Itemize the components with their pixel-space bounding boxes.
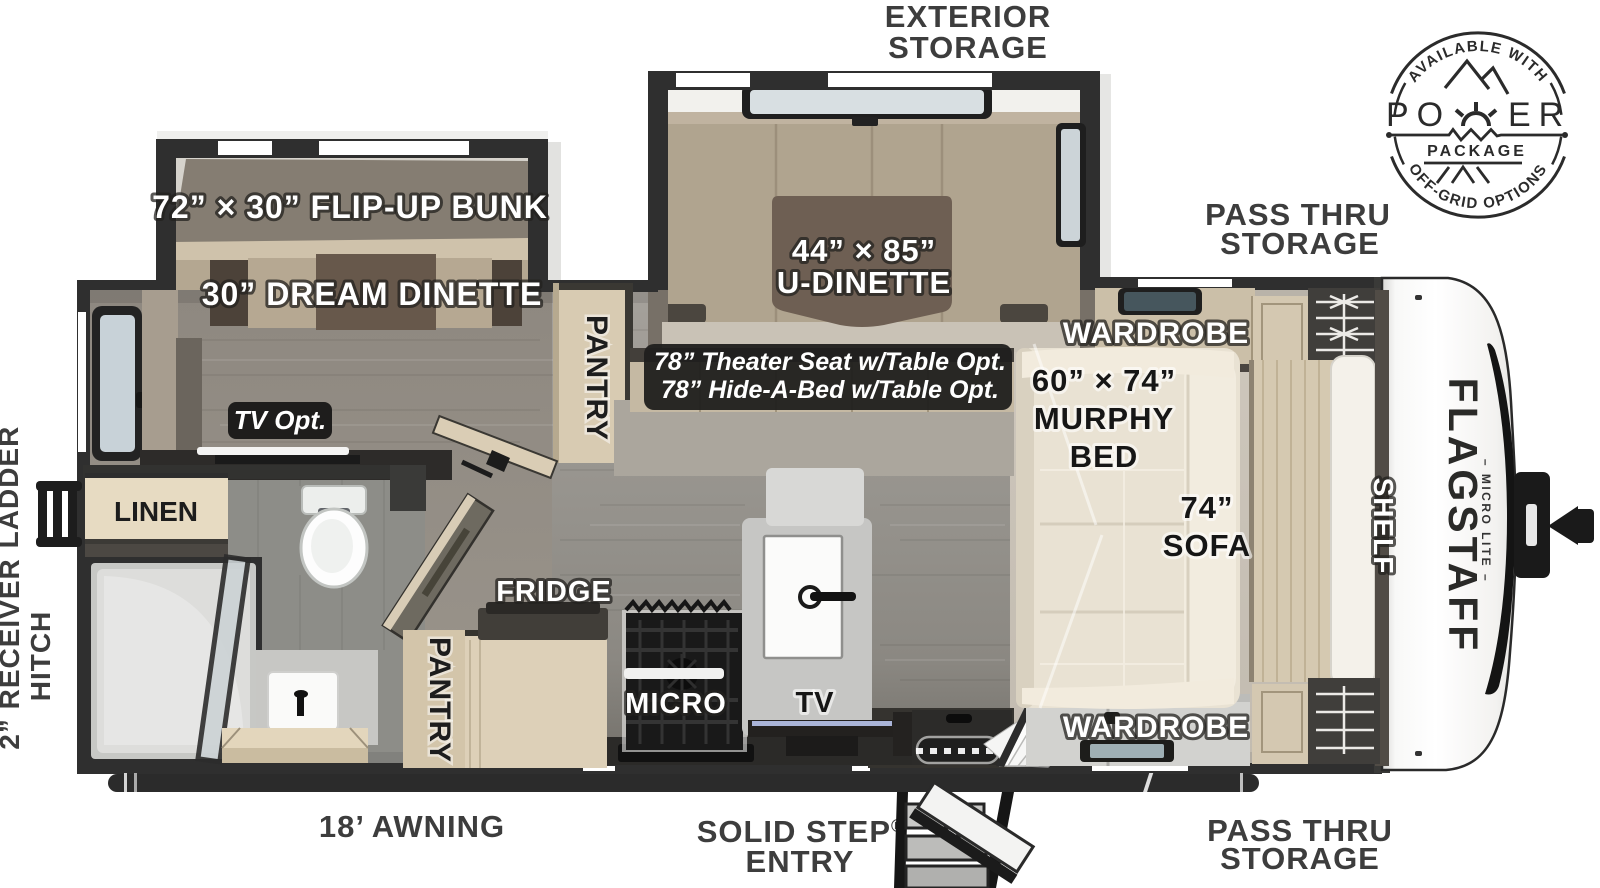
svg-text:74”: 74” [1181, 490, 1234, 525]
svg-text:SHELF: SHELF [1368, 478, 1399, 575]
svg-text:FRIDGE: FRIDGE [496, 576, 612, 608]
svg-text:PANTRY: PANTRY [423, 637, 456, 763]
svg-text:MURPHY: MURPHY [1034, 401, 1174, 436]
svg-text:MICRO: MICRO [625, 688, 727, 720]
svg-text:ENTRY: ENTRY [746, 844, 855, 879]
svg-text:78” Theater Seat w/Table Opt.: 78” Theater Seat w/Table Opt. [654, 348, 1006, 376]
svg-text:PACKAGE: PACKAGE [1427, 143, 1527, 160]
svg-text:WARDROBE: WARDROBE [1063, 711, 1249, 744]
svg-text:STORAGE: STORAGE [888, 30, 1048, 65]
svg-text:72” × 30” FLIP-UP BUNK: 72” × 30” FLIP-UP BUNK [152, 189, 548, 225]
svg-text:– MICRO LITE –: – MICRO LITE – [1479, 459, 1493, 583]
svg-text:ER: ER [1508, 96, 1571, 134]
svg-text:BED: BED [1070, 439, 1138, 474]
svg-text:LINEN: LINEN [114, 496, 198, 527]
svg-text:STORAGE: STORAGE [1220, 226, 1380, 261]
svg-text:EXTERIOR: EXTERIOR [885, 0, 1051, 34]
svg-text:PO: PO [1386, 96, 1451, 134]
svg-text:STORAGE: STORAGE [1220, 841, 1380, 876]
svg-text:SOFA: SOFA [1163, 528, 1251, 563]
svg-text:2” RECEIVER: 2” RECEIVER [0, 558, 25, 750]
svg-text:TV Opt.: TV Opt. [234, 405, 326, 435]
svg-text:WARDROBE: WARDROBE [1063, 317, 1249, 350]
svg-text:60” × 74”: 60” × 74” [1032, 363, 1176, 398]
svg-text:LADDER: LADDER [0, 426, 24, 549]
svg-text:18’ AWNING: 18’ AWNING [319, 809, 505, 844]
svg-text:30” DREAM DINETTE: 30” DREAM DINETTE [202, 276, 543, 312]
svg-text:TV: TV [795, 687, 834, 719]
svg-text:PANTRY: PANTRY [580, 315, 613, 441]
svg-text:U-DINETTE: U-DINETTE [777, 265, 951, 300]
svg-text:AVAILABLE WITH: AVAILABLE WITH [1405, 38, 1552, 86]
svg-text:44” × 85”: 44” × 85” [792, 233, 936, 268]
svg-text:78” Hide-A-Bed w/Table Opt.: 78” Hide-A-Bed w/Table Opt. [661, 376, 999, 404]
svg-text:HITCH: HITCH [25, 611, 56, 702]
